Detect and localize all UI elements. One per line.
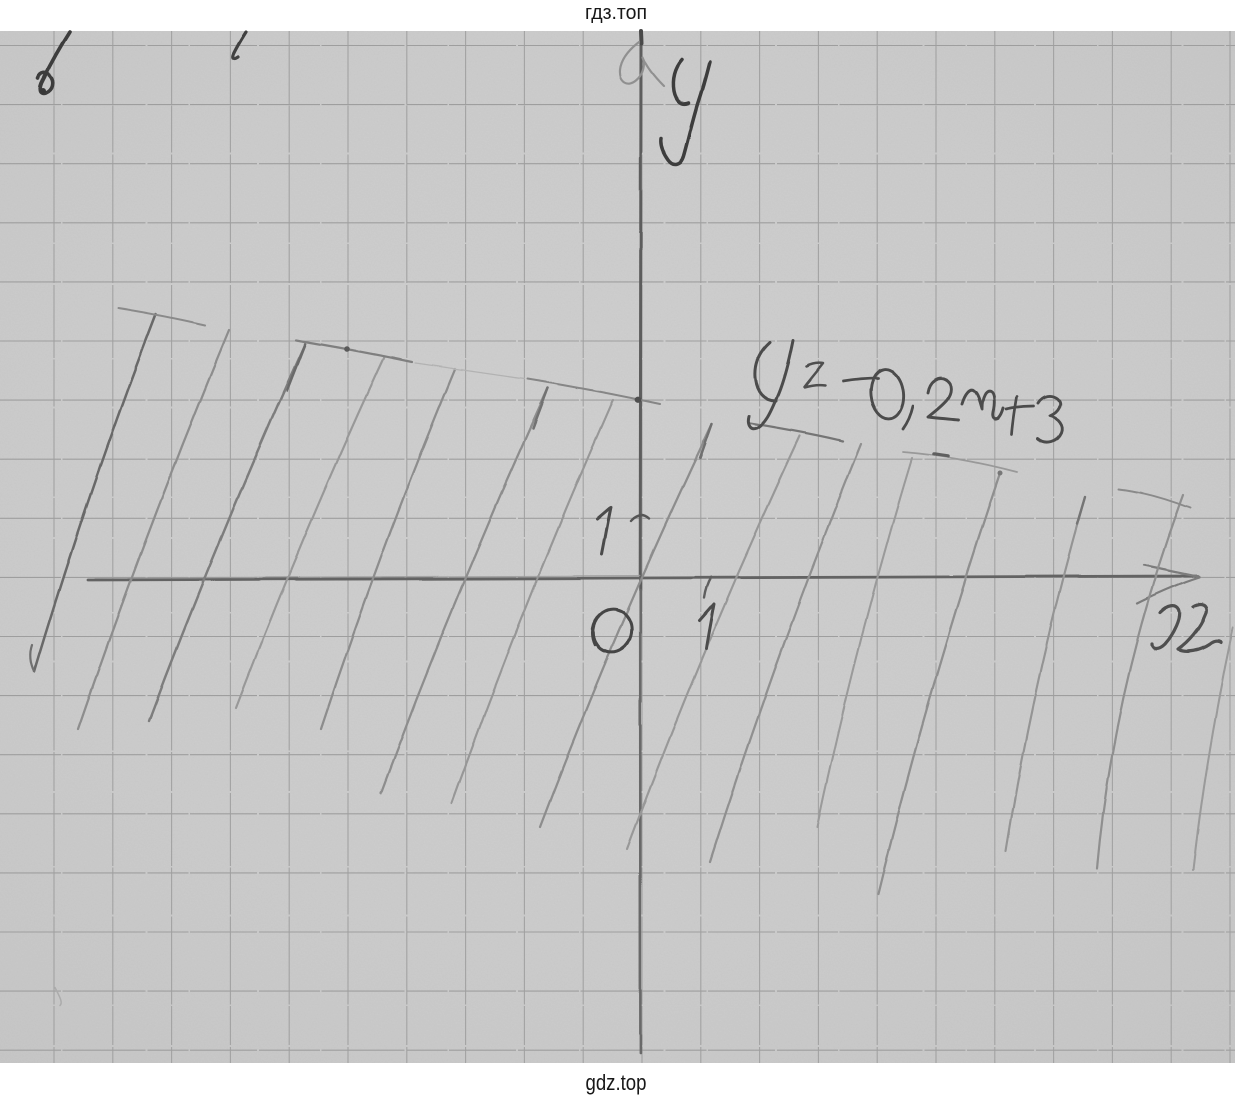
- svg-text:гдз.топ: гдз.топ: [585, 2, 647, 24]
- svg-text:gdz.top: gdz.top: [586, 1070, 647, 1095]
